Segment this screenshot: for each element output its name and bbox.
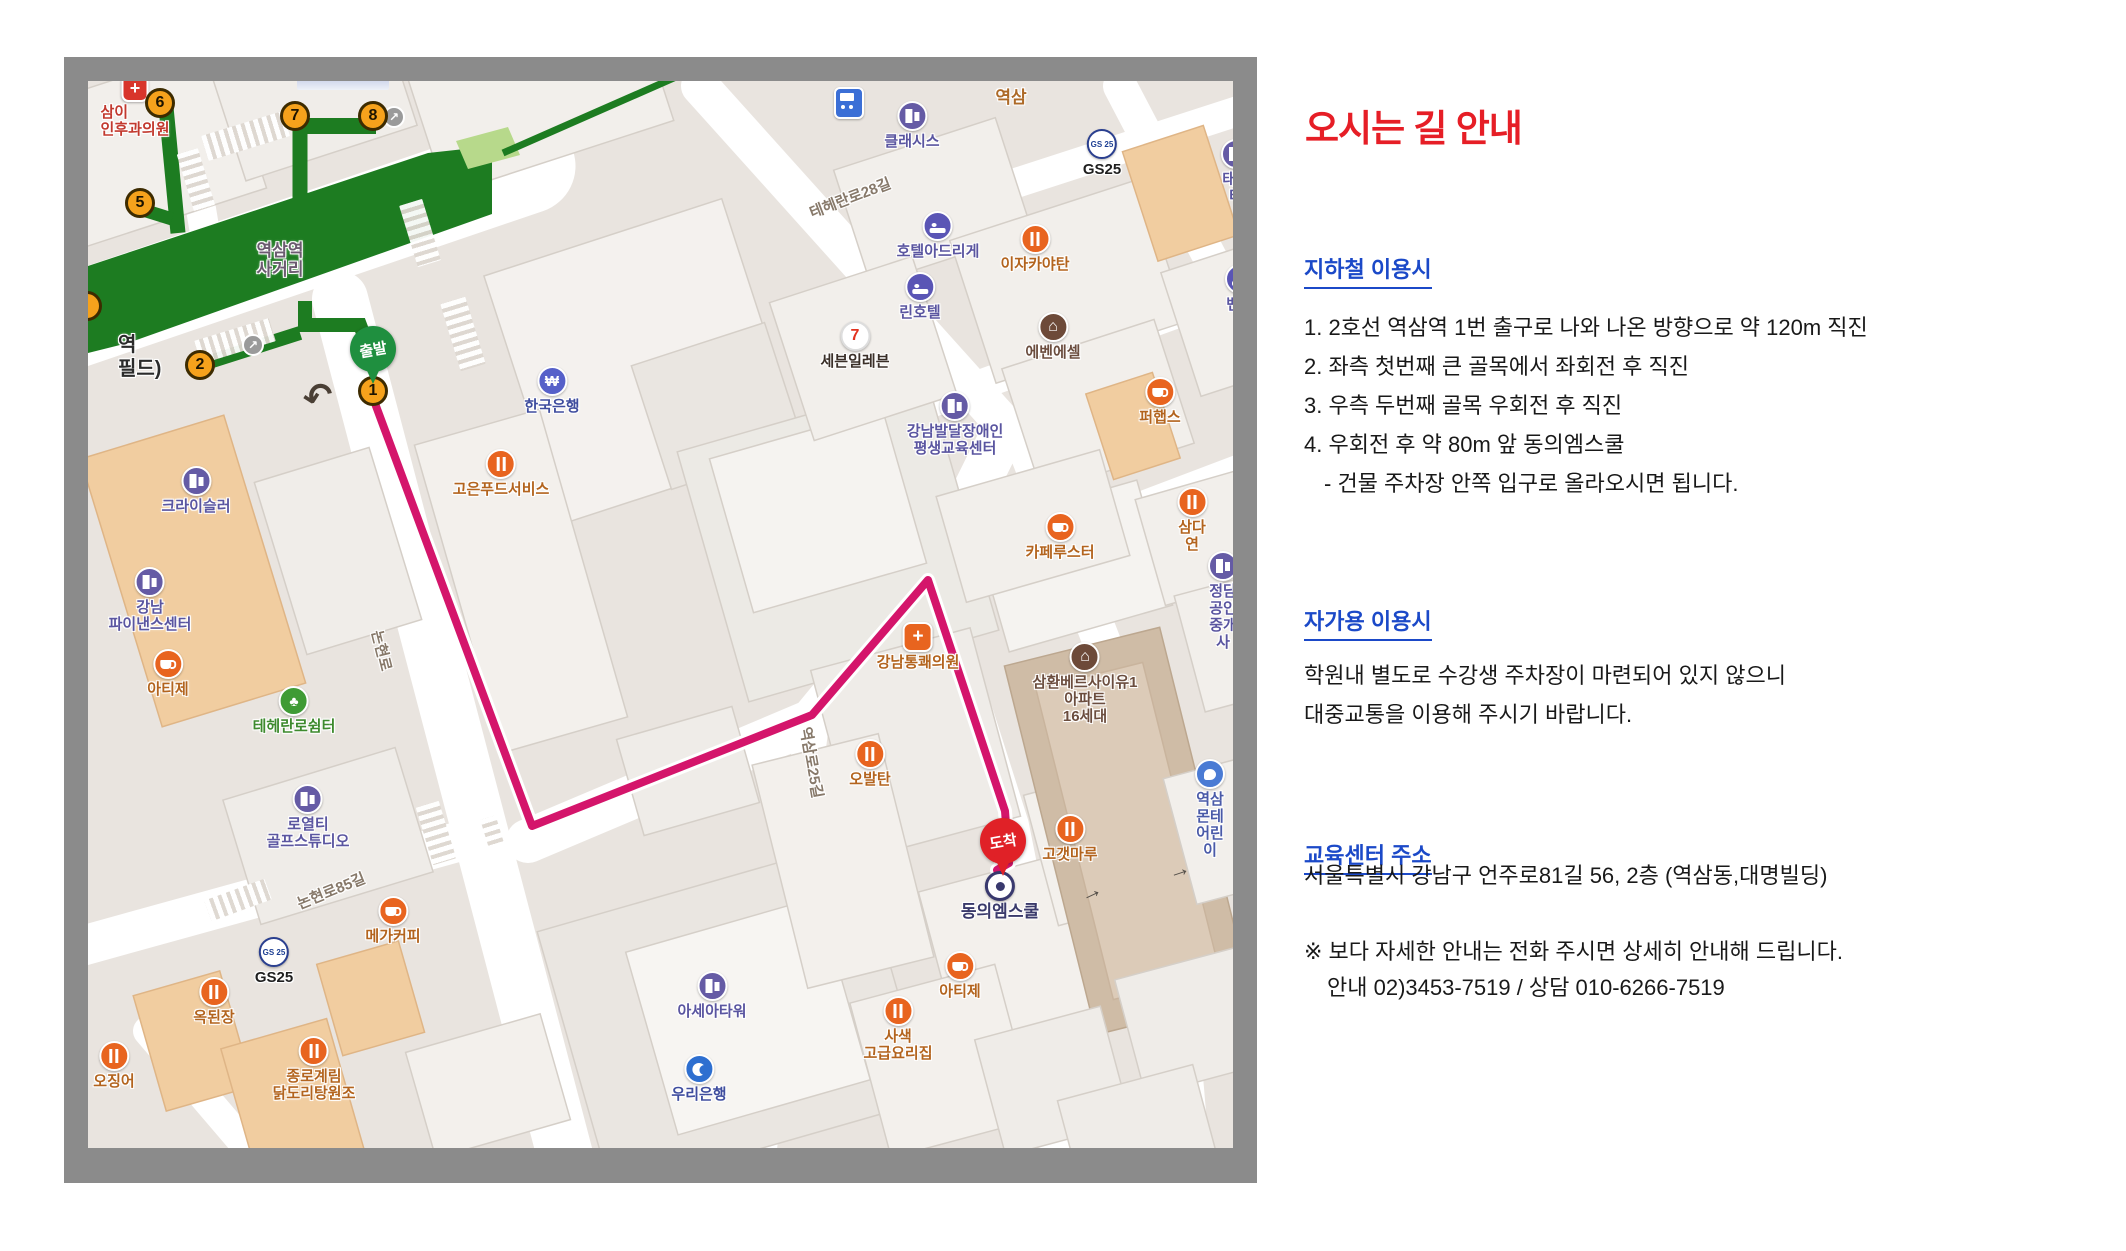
- subway-exit-badge[interactable]: 7: [280, 101, 310, 131]
- map-poi[interactable]: 우리은행: [671, 1054, 726, 1103]
- convenience-store-icon: 7: [840, 321, 870, 351]
- map-poi[interactable]: 옥된장: [193, 977, 234, 1026]
- street-label: 역 필드): [118, 331, 161, 381]
- map-poi[interactable]: 종로계림 닭도리탕원조: [273, 1036, 356, 1102]
- subway-steps: 1. 2호선 역삼역 1번 출구로 나와 나온 방향으로 약 120m 직진 2…: [1304, 308, 1868, 464]
- map-poi[interactable]: 크라이슬러: [161, 466, 230, 515]
- map-poi[interactable]: 벤모텔: [1225, 264, 1233, 330]
- map-poi[interactable]: 클래시스: [884, 101, 939, 150]
- street-label-text: 역 필드): [118, 333, 161, 381]
- poi-label: 우리은행: [671, 1086, 726, 1103]
- park-icon: ♣: [279, 686, 309, 716]
- subway-heading-text: 지하철 이용시: [1304, 252, 1432, 289]
- arrive-pin-tail: [994, 856, 1012, 885]
- map-poi[interactable]: GS 25 GS25: [1083, 129, 1121, 178]
- poi-label: GS25: [1083, 161, 1121, 178]
- poi-label: 린호텔: [899, 304, 940, 321]
- restaurant-icon: [1177, 487, 1207, 517]
- cafe-icon: [153, 649, 183, 679]
- map-poi[interactable]: 강남 파이낸스센터: [109, 567, 192, 633]
- bank-icon: [684, 1054, 714, 1084]
- map-poi[interactable]: 태광타: [1221, 139, 1233, 205]
- restaurant-icon: [299, 1036, 329, 1066]
- car-section-heading: 자가용 이용시: [1304, 586, 1432, 641]
- poi-label: 벤모텔: [1225, 296, 1233, 330]
- poi-label: 세븐일레븐: [820, 353, 889, 370]
- poi-label: 오발탄: [849, 771, 890, 788]
- map-poi[interactable]: 아세아타워: [677, 971, 746, 1020]
- restaurant-icon: [855, 739, 885, 769]
- map-poi[interactable]: 사색 고급요리집: [863, 996, 932, 1062]
- cafe-icon: [945, 951, 975, 981]
- map-poi[interactable]: 카페루스터: [1025, 512, 1094, 561]
- map-poi[interactable]: 역삼몬테 어린이: [1195, 759, 1225, 859]
- poi-label: 테헤란로쉼터: [253, 718, 336, 735]
- map-poi[interactable]: ⌂ 삼환베르사이유1 아파트 16세대: [1033, 642, 1138, 725]
- car-text: 학원내 별도로 수강생 주차장이 마련되어 있지 않으니 대중교통을 이용해 주…: [1304, 656, 1786, 734]
- poi-label: 에벤에셀: [1025, 344, 1080, 361]
- map-poi[interactable]: 역삼: [995, 87, 1026, 106]
- hotel-icon: [923, 211, 953, 241]
- subway-section-heading: 지하철 이용시: [1304, 234, 1432, 289]
- poi-label: 아세아타워: [677, 1003, 746, 1020]
- phone-text: 안내 02)3453-7519 / 상담 010-6266-7519: [1327, 968, 1725, 1007]
- poi-label: 종로계림 닭도리탕원조: [273, 1068, 356, 1102]
- map-frame: 클래시스 역삼 GS 25 GS25 태광타 호텔아드리게 이자카야탄 린호텔 …: [64, 57, 1257, 1183]
- map-poi[interactable]: 오징어: [93, 1041, 134, 1090]
- restaurant-icon: [99, 1041, 129, 1071]
- cafe-icon: [1045, 512, 1075, 542]
- poi-label: 로열티 골프스튜디오: [267, 816, 350, 850]
- poi-label: 삼다연: [1172, 519, 1213, 553]
- convenience-store-icon: GS 25: [1087, 129, 1117, 159]
- poi-label: 동의엠스쿨: [961, 903, 1039, 920]
- poi-label: 카페루스터: [1025, 544, 1094, 561]
- map-poi[interactable]: 삼다연: [1172, 487, 1213, 553]
- poi-label: 강남발달장애인 평생교육센터: [907, 423, 1004, 457]
- start-pin[interactable]: 출발: [348, 326, 398, 390]
- apartment-icon: ⌂: [1038, 312, 1068, 342]
- restaurant-icon: [486, 449, 516, 479]
- poi-label: 한국은행: [524, 398, 579, 415]
- poi-label: 크라이슬러: [161, 498, 230, 515]
- poi-label: 강남 파이낸스센터: [109, 599, 192, 633]
- poi-label: 클래시스: [884, 133, 939, 150]
- poi-label: 역삼몬테 어린이: [1195, 791, 1225, 859]
- map-poi[interactable]: 이자카야탄: [1000, 224, 1069, 273]
- subway-exit-badge[interactable]: 5: [125, 188, 155, 218]
- map-poi[interactable]: 호텔아드리게: [897, 211, 980, 260]
- poi-label: 강남통쾌의원: [877, 654, 960, 671]
- restaurant-icon: [1055, 814, 1085, 844]
- arrive-pin[interactable]: 도착: [978, 818, 1028, 882]
- subway-note: - 건물 주차장 안쪽 입구로 올라오시면 됩니다.: [1324, 464, 1738, 503]
- map-poi[interactable]: 퍼햅스: [1139, 377, 1180, 426]
- map-poi[interactable]: 오발탄: [849, 739, 890, 788]
- map-poi[interactable]: 린호텔: [899, 272, 940, 321]
- cafe-icon: [1145, 377, 1175, 407]
- page-title: 오시는 길 안내: [1305, 98, 1522, 152]
- building-icon: [135, 567, 165, 597]
- subway-exit-badge[interactable]: 6: [145, 88, 175, 118]
- map-poi[interactable]: 7 세븐일레븐: [820, 321, 889, 370]
- poi-label: 메가커피: [365, 928, 420, 945]
- poi-label: 삼환베르사이유1 아파트 16세대: [1033, 674, 1138, 725]
- map-poi[interactable]: ⌂ 에벤에셀: [1025, 312, 1080, 361]
- map-poi[interactable]: + 강남통쾌의원: [877, 622, 960, 671]
- convenience-store-icon: GS 25: [259, 937, 289, 967]
- restaurant-icon: [199, 977, 229, 1007]
- apartment-icon: ⌂: [1070, 642, 1100, 672]
- start-pin-tail: [364, 364, 382, 393]
- poi-label: 아티제: [939, 983, 980, 1000]
- page: 클래시스 역삼 GS 25 GS25 태광타 호텔아드리게 이자카야탄 린호텔 …: [0, 0, 2126, 1251]
- hospital-icon: +: [903, 622, 933, 652]
- building-icon: [940, 391, 970, 421]
- poi-label: 고은푸드서비스: [453, 481, 550, 498]
- bus-stop-icon: [834, 87, 864, 119]
- poi-label: 호텔아드리게: [897, 243, 980, 260]
- map-poi[interactable]: ₩ 한국은행: [524, 366, 579, 415]
- poi-label: 고갯마루: [1042, 846, 1097, 863]
- poi-label: GS25: [255, 969, 293, 986]
- subway-exit-badge[interactable]: 2: [185, 350, 215, 380]
- restaurant-icon: [883, 996, 913, 1026]
- clipped-poi-label: [297, 81, 389, 90]
- map-poi[interactable]: 아티제: [147, 649, 188, 698]
- map-canvas[interactable]: 클래시스 역삼 GS 25 GS25 태광타 호텔아드리게 이자카야탄 린호텔 …: [88, 81, 1233, 1148]
- map-poi[interactable]: ♣ 테헤란로쉼터: [253, 686, 336, 735]
- map-poi[interactable]: 정담 공인중개사: [1208, 551, 1233, 651]
- poi-label: 사색 고급요리집: [863, 1028, 932, 1062]
- map-poi[interactable]: 로열티 골프스튜디오: [267, 784, 350, 850]
- cafe-icon: [378, 896, 408, 926]
- poi-label: 이자카야탄: [1000, 256, 1069, 273]
- map-poi[interactable]: 메가커피: [365, 896, 420, 945]
- hotel-icon: [905, 272, 935, 302]
- map-poi[interactable]: 고갯마루: [1042, 814, 1097, 863]
- car-heading-text: 자가용 이용시: [1304, 604, 1432, 641]
- building-icon: [181, 466, 211, 496]
- poi-label: 아티제: [147, 681, 188, 698]
- map-poi[interactable]: 강남발달장애인 평생교육센터: [907, 391, 1004, 457]
- building-icon: [897, 101, 927, 131]
- poi-label: 태광타: [1221, 171, 1233, 205]
- hotel-icon: [1225, 264, 1233, 294]
- bank-icon: ₩: [537, 366, 567, 396]
- map-poi[interactable]: GS 25 GS25: [255, 937, 293, 986]
- building-icon: [697, 971, 727, 1001]
- kids-icon: [1195, 759, 1225, 789]
- poi-label: 옥된장: [193, 1009, 234, 1026]
- map-poi[interactable]: 고은푸드서비스: [453, 449, 550, 498]
- poi-label: 퍼햅스: [1139, 409, 1180, 426]
- poi-label: 역삼: [995, 89, 1026, 106]
- restaurant-icon: [1020, 224, 1050, 254]
- camera-icon: ↗: [242, 334, 264, 356]
- street-label-text: 역삼역 사거리: [257, 241, 304, 279]
- building-icon: [1208, 551, 1233, 581]
- map-poi[interactable]: 아티제: [939, 951, 980, 1000]
- poi-label: 정담 공인중개사: [1208, 583, 1233, 651]
- address-text: 서울특별시 강남구 언주로81길 56, 2층 (역삼동,대명빌딩): [1304, 856, 1827, 895]
- building-icon: [1221, 139, 1233, 169]
- subway-exit-badge[interactable]: 8: [358, 101, 388, 131]
- street-label: 역삼역 사거리: [257, 239, 304, 279]
- poi-label: 오징어: [93, 1073, 134, 1090]
- building-icon: [293, 784, 323, 814]
- notice-text: ※ 보다 자세한 안내는 전화 주시면 상세히 안내해 드립니다.: [1304, 932, 1843, 971]
